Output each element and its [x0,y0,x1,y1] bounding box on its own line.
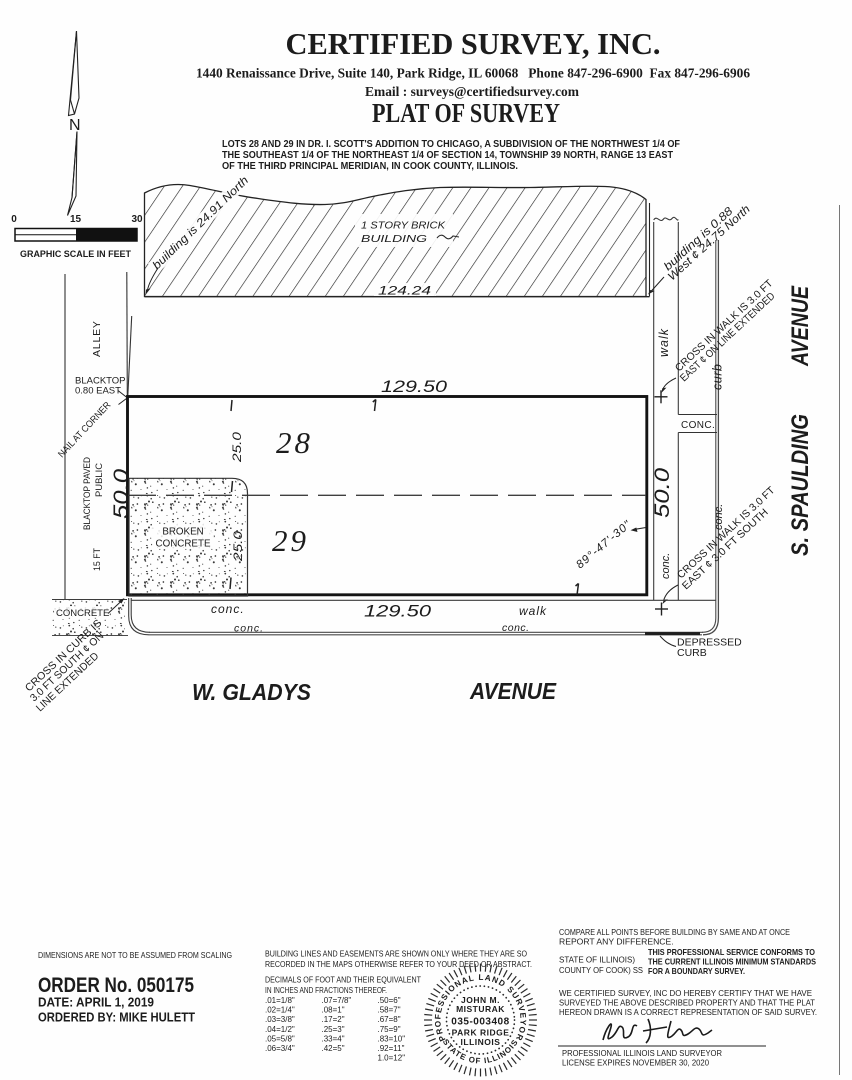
svg-text:DECIMALS OF FOOT AND THEIR EQU: DECIMALS OF FOOT AND THEIR EQUIVALENT [265,975,422,985]
svg-text:AVENUE: AVENUE [787,285,814,367]
svg-text:THE SOUTHEAST 1/4 OF THE NORTH: THE SOUTHEAST 1/4 OF THE NORTHEAST 1/4 O… [222,150,673,161]
svg-text:PROFESSIONAL ILLINOIS LAND SUR: PROFESSIONAL ILLINOIS LAND SURVEYOR [562,1048,722,1058]
svg-text:WE CERTIFIED SURVEY, INC DO HE: WE CERTIFIED SURVEY, INC DO HEREBY CERTI… [559,988,812,998]
svg-text:15: 15 [70,214,82,225]
svg-text:ORDERED BY: MIKE HULETT: ORDERED BY: MIKE HULETT [38,1010,195,1025]
svg-text:0: 0 [11,214,17,225]
svg-text:0.80 EAST: 0.80 EAST [75,386,121,397]
svg-text:129.50: 129.50 [364,602,432,621]
svg-text:1.0=12": 1.0=12" [378,1054,406,1063]
svg-text:.67=8": .67=8" [378,1015,401,1024]
svg-text:conc.: conc. [713,504,725,530]
svg-text:.58=7": .58=7" [378,1006,401,1015]
svg-text:.04=1/2": .04=1/2" [265,1025,295,1034]
svg-text:.03=3/8": .03=3/8" [265,1015,295,1024]
svg-text:FOR A BOUNDARY SURVEY.: FOR A BOUNDARY SURVEY. [648,966,745,976]
svg-text:035-003408: 035-003408 [451,1017,509,1028]
svg-text:BLACKTOP PAVED: BLACKTOP PAVED [82,457,93,530]
svg-text:AVENUE: AVENUE [469,678,557,704]
svg-text:.01=1/8": .01=1/8" [265,996,295,1005]
svg-text:SURVEYED THE ABOVE DESCRIBED P: SURVEYED THE ABOVE DESCRIBED PROPERTY AN… [559,998,816,1008]
svg-text:OF THE THIRD PRINCIPAL MERIDIA: OF THE THIRD PRINCIPAL MERIDIAN, IN COOK… [222,161,518,172]
svg-text:DATE: APRIL 1, 2019: DATE: APRIL 1, 2019 [38,995,154,1010]
svg-text:.75=9": .75=9" [378,1025,401,1034]
svg-text:curb: curb [711,364,725,390]
svg-text:.05=5/8": .05=5/8" [265,1034,295,1043]
svg-text:CURB: CURB [677,647,707,659]
svg-text:walk: walk [657,328,671,357]
svg-text:.25=3": .25=3" [322,1025,345,1034]
svg-text:.83=10": .83=10" [378,1034,406,1043]
svg-text:1 STORY BRICK: 1 STORY BRICK [361,220,446,232]
svg-text:COMPARE ALL POINTS BEFORE BUIL: COMPARE ALL POINTS BEFORE BUILDING BY SA… [559,927,790,937]
svg-text:.02=1/4": .02=1/4" [265,1006,295,1015]
svg-text:PUBLIC: PUBLIC [94,463,105,497]
svg-text:PLAT OF SURVEY: PLAT OF SURVEY [372,98,560,128]
svg-text:DIMENSIONS ARE NOT TO BE ASSUM: DIMENSIONS ARE NOT TO BE ASSUMED FROM SC… [38,950,232,960]
svg-text:25.0: 25.0 [232,431,244,463]
svg-text:W. GLADYS: W. GLADYS [192,679,312,705]
svg-text:.50=6": .50=6" [378,996,401,1005]
svg-text:50.0: 50.0 [651,468,674,518]
svg-text:.42=5": .42=5" [322,1044,345,1053]
svg-text:ALLEY: ALLEY [91,320,103,357]
svg-text:GRAPHIC SCALE IN FEET: GRAPHIC SCALE IN FEET [20,249,131,260]
svg-text:S. SPAULDING: S. SPAULDING [787,414,814,556]
svg-text:28: 28 [276,425,313,460]
svg-text:129.50: 129.50 [381,378,448,396]
svg-text:MISTURAK: MISTURAK [456,1004,505,1014]
svg-text:REPORT ANY DIFFERENCE.: REPORT ANY DIFFERENCE. [559,937,674,947]
svg-text:15 FT: 15 FT [92,548,103,571]
svg-text:HEREON DRAWN IS A CORRECT REPR: HEREON DRAWN IS A CORRECT REPRESENTATION… [559,1007,817,1017]
svg-text:CERTIFIED SURVEY, INC.: CERTIFIED SURVEY, INC. [286,26,661,61]
svg-text:.33=4": .33=4" [322,1034,345,1043]
svg-text:LICENSE EXPIRES NOVEMBER 30, 2: LICENSE EXPIRES NOVEMBER 30, 2020 [562,1058,709,1068]
svg-text:BUILDING LINES AND EASEMENTS A: BUILDING LINES AND EASEMENTS ARE SHOWN O… [265,949,527,959]
svg-text:.92=11": .92=11" [378,1044,405,1053]
svg-text:RECORDED IN THE MAPS OTHERWISE: RECORDED IN THE MAPS OTHERWISE REFER TO … [265,959,532,969]
svg-text:BROKEN: BROKEN [162,527,203,538]
svg-text:.06=3/4": .06=3/4" [265,1044,295,1053]
svg-text:STATE OF ILLINOIS): STATE OF ILLINOIS) [559,955,635,965]
svg-text:conc.: conc. [234,623,264,635]
svg-text:CONCRETE: CONCRETE [156,539,211,550]
svg-text:conc.: conc. [211,602,245,616]
svg-text:BUILDING: BUILDING [361,233,427,245]
svg-text:ILLINOIS: ILLINOIS [461,1037,501,1047]
svg-text:1440 Renaissance Drive, Suite: 1440 Renaissance Drive, Suite 140, Park … [196,67,750,82]
svg-text:.17=2": .17=2" [322,1015,345,1024]
svg-text:walk: walk [519,604,547,618]
svg-text:THIS PROFESSIONAL SERVICE CONF: THIS PROFESSIONAL SERVICE CONFORMS TO [648,947,815,957]
svg-text:CONCRETE: CONCRETE [56,608,109,619]
svg-text:124.24: 124.24 [378,284,431,298]
svg-text:conc.: conc. [502,622,530,634]
svg-text:THE CURRENT ILLINOIS MINIMUM S: THE CURRENT ILLINOIS MINIMUM STANDARDS [648,957,816,967]
svg-text:conc.: conc. [660,553,672,579]
svg-text:29: 29 [272,523,309,558]
svg-text:COUNTY OF COOK) SS: COUNTY OF COOK) SS [559,965,643,975]
svg-text:N: N [69,117,81,134]
svg-text:IN INCHES AND FRACTIONS THEREO: IN INCHES AND FRACTIONS THEREOF. [265,985,387,995]
svg-text:30: 30 [131,214,143,225]
svg-text:LOTS 28 AND 29 IN DR. I. SCOTT: LOTS 28 AND 29 IN DR. I. SCOTT'S ADDITIO… [222,139,680,150]
svg-text:.08=1": .08=1" [322,1006,345,1015]
svg-text:PARK RIDGE: PARK RIDGE [452,1028,510,1038]
svg-text:.07=7/8": .07=7/8" [322,996,352,1005]
svg-text:CONC.: CONC. [681,420,715,431]
